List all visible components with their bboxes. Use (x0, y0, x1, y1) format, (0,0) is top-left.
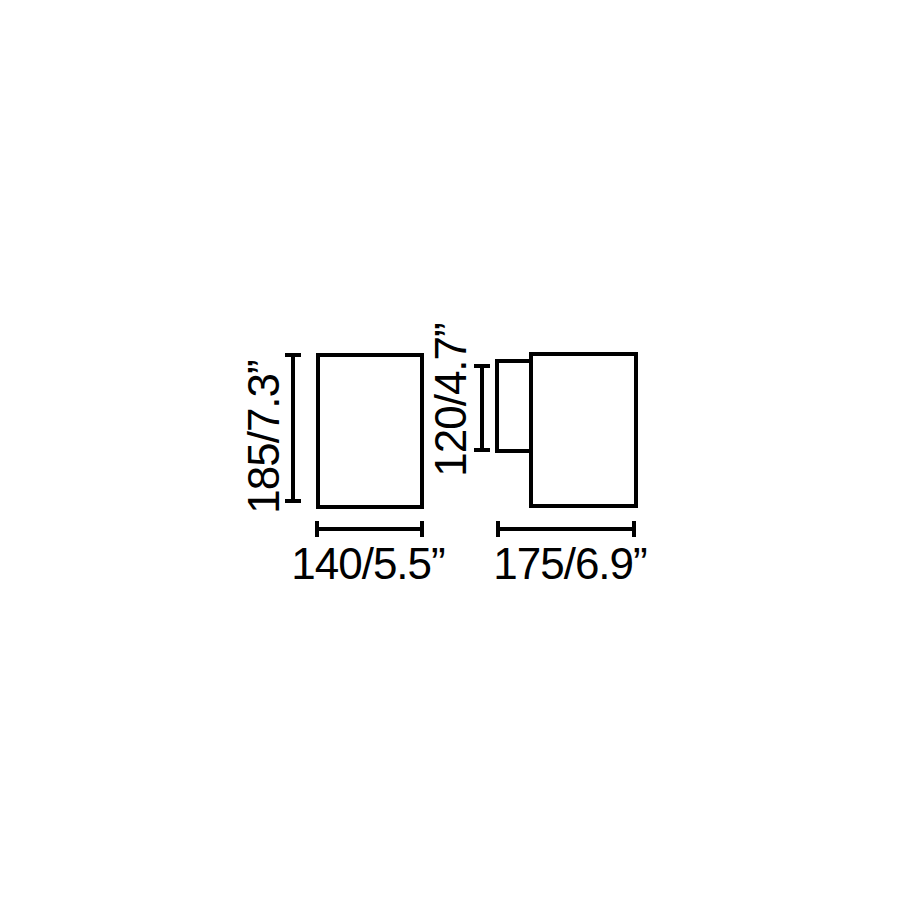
depth-dimension-line (498, 527, 634, 531)
mount-height-dimension-line (480, 364, 484, 452)
mount-height-dimension-tick-bottom (474, 448, 490, 452)
width-dimension-tick-right (420, 521, 424, 537)
depth-dimension-tick-left (496, 521, 500, 537)
depth-dimension-tick-right (632, 521, 636, 537)
height-dimension-tick-top (285, 353, 301, 357)
height-dimension-line (291, 353, 295, 503)
mount-height-dimension-label: 120/4.7” (428, 290, 474, 510)
front-view-body-outline (316, 353, 424, 509)
side-view-body-outline (529, 352, 638, 508)
width-dimension-line (317, 527, 424, 531)
mount-height-dimension-tick-top (474, 364, 490, 368)
side-view-mount-plate-outline (495, 359, 533, 453)
dimension-drawing-canvas: 185/7.3” 140/5.5” 120/4.7” 175/6.9” (0, 0, 900, 900)
height-dimension-label: 185/7.3” (241, 327, 287, 547)
width-dimension-tick-left (315, 521, 319, 537)
depth-dimension-label: 175/6.9” (450, 541, 690, 587)
